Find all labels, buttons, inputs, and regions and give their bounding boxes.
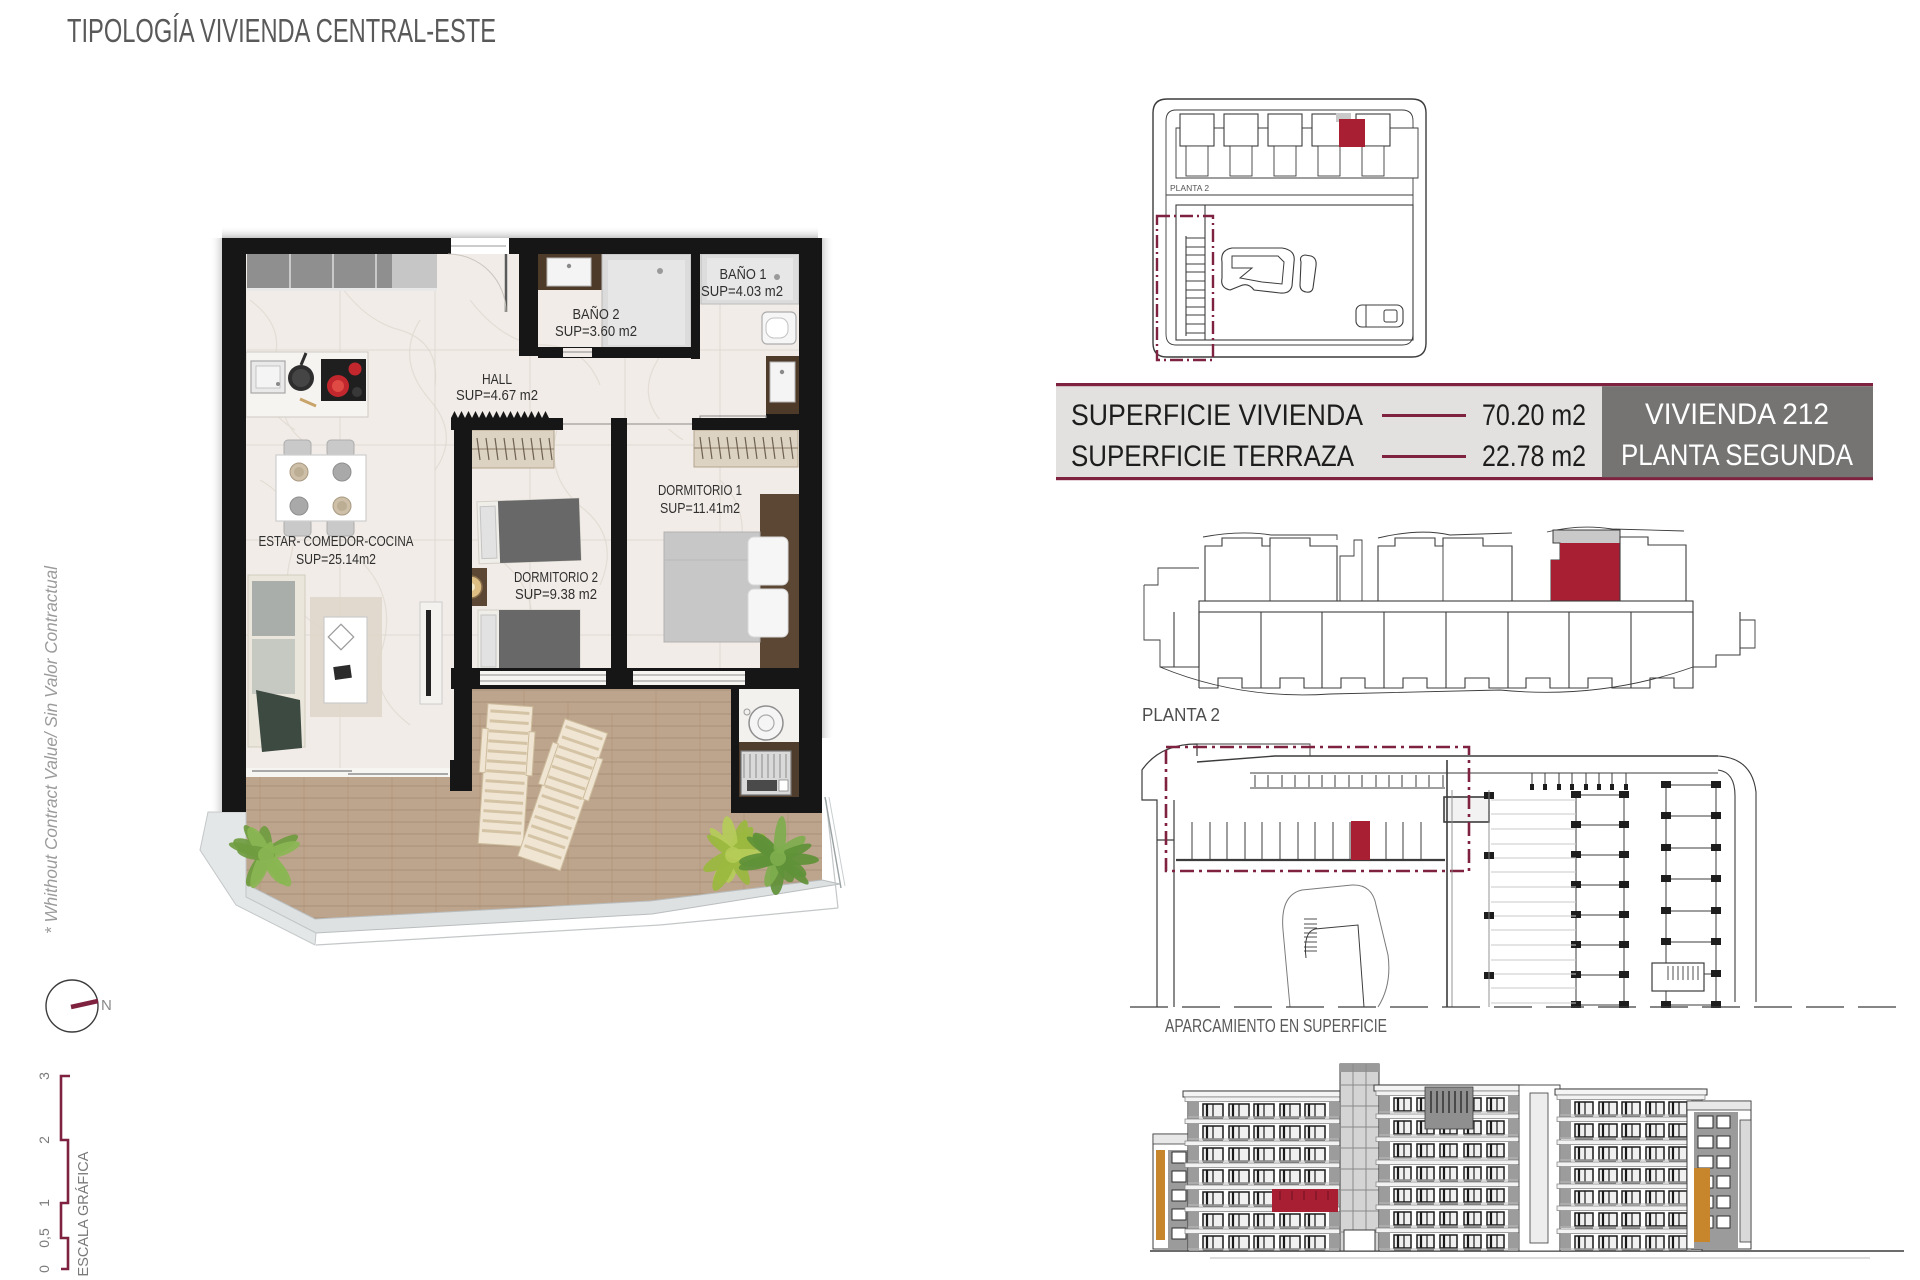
svg-text:SUP=9.38 m2: SUP=9.38 m2 [515,587,597,603]
svg-text:PLANTA 2: PLANTA 2 [1142,705,1220,725]
svg-text:SUPERFICIE TERRAZA: SUPERFICIE TERRAZA [1071,440,1354,473]
svg-text:0,5: 0,5 [36,1228,52,1248]
svg-text:SUP=3.60 m2: SUP=3.60 m2 [555,324,637,340]
svg-text:ESTAR- COMEDOR-COCINA: ESTAR- COMEDOR-COCINA [259,534,414,550]
svg-text:ESCALA GRÁFICA: ESCALA GRÁFICA [75,1151,92,1276]
svg-text:1: 1 [36,1199,52,1207]
svg-text:SUP=4.03 m2: SUP=4.03 m2 [701,284,783,300]
svg-text:BAÑO 2: BAÑO 2 [573,306,620,323]
svg-text:DORMITORIO 1: DORMITORIO 1 [658,483,742,499]
svg-text:SUP=11.41m2: SUP=11.41m2 [660,501,740,517]
svg-text:PLANTA 2: PLANTA 2 [1170,183,1209,193]
svg-text:TIPOLOGÍA VIVIENDA CENTRAL-EST: TIPOLOGÍA VIVIENDA CENTRAL-ESTE [67,12,496,49]
svg-text:3: 3 [36,1072,52,1080]
svg-text:DORMITORIO 2: DORMITORIO 2 [514,570,598,586]
svg-text:SUP=25.14m2: SUP=25.14m2 [296,552,376,568]
svg-text:* Whithout Contract Value/ Sin: * Whithout Contract Value/ Sin Valor Con… [41,565,61,934]
svg-text:0: 0 [36,1265,52,1273]
svg-text:22.78 m2: 22.78 m2 [1482,440,1586,473]
svg-text:VIVIENDA 212: VIVIENDA 212 [1645,398,1829,431]
svg-text:70.20 m2: 70.20 m2 [1482,399,1586,432]
svg-text:N: N [101,997,112,1014]
svg-text:2: 2 [36,1136,52,1144]
svg-text:BAÑO 1: BAÑO 1 [720,266,767,283]
svg-text:APARCAMIENTO EN SUPERFICIE: APARCAMIENTO EN SUPERFICIE [1165,1015,1387,1036]
svg-text:PLANTA SEGUNDA: PLANTA SEGUNDA [1621,439,1853,472]
svg-text:SUP=4.67 m2: SUP=4.67 m2 [456,388,538,404]
svg-text:SUPERFICIE VIVIENDA: SUPERFICIE VIVIENDA [1071,399,1363,432]
svg-text:HALL: HALL [482,372,512,388]
